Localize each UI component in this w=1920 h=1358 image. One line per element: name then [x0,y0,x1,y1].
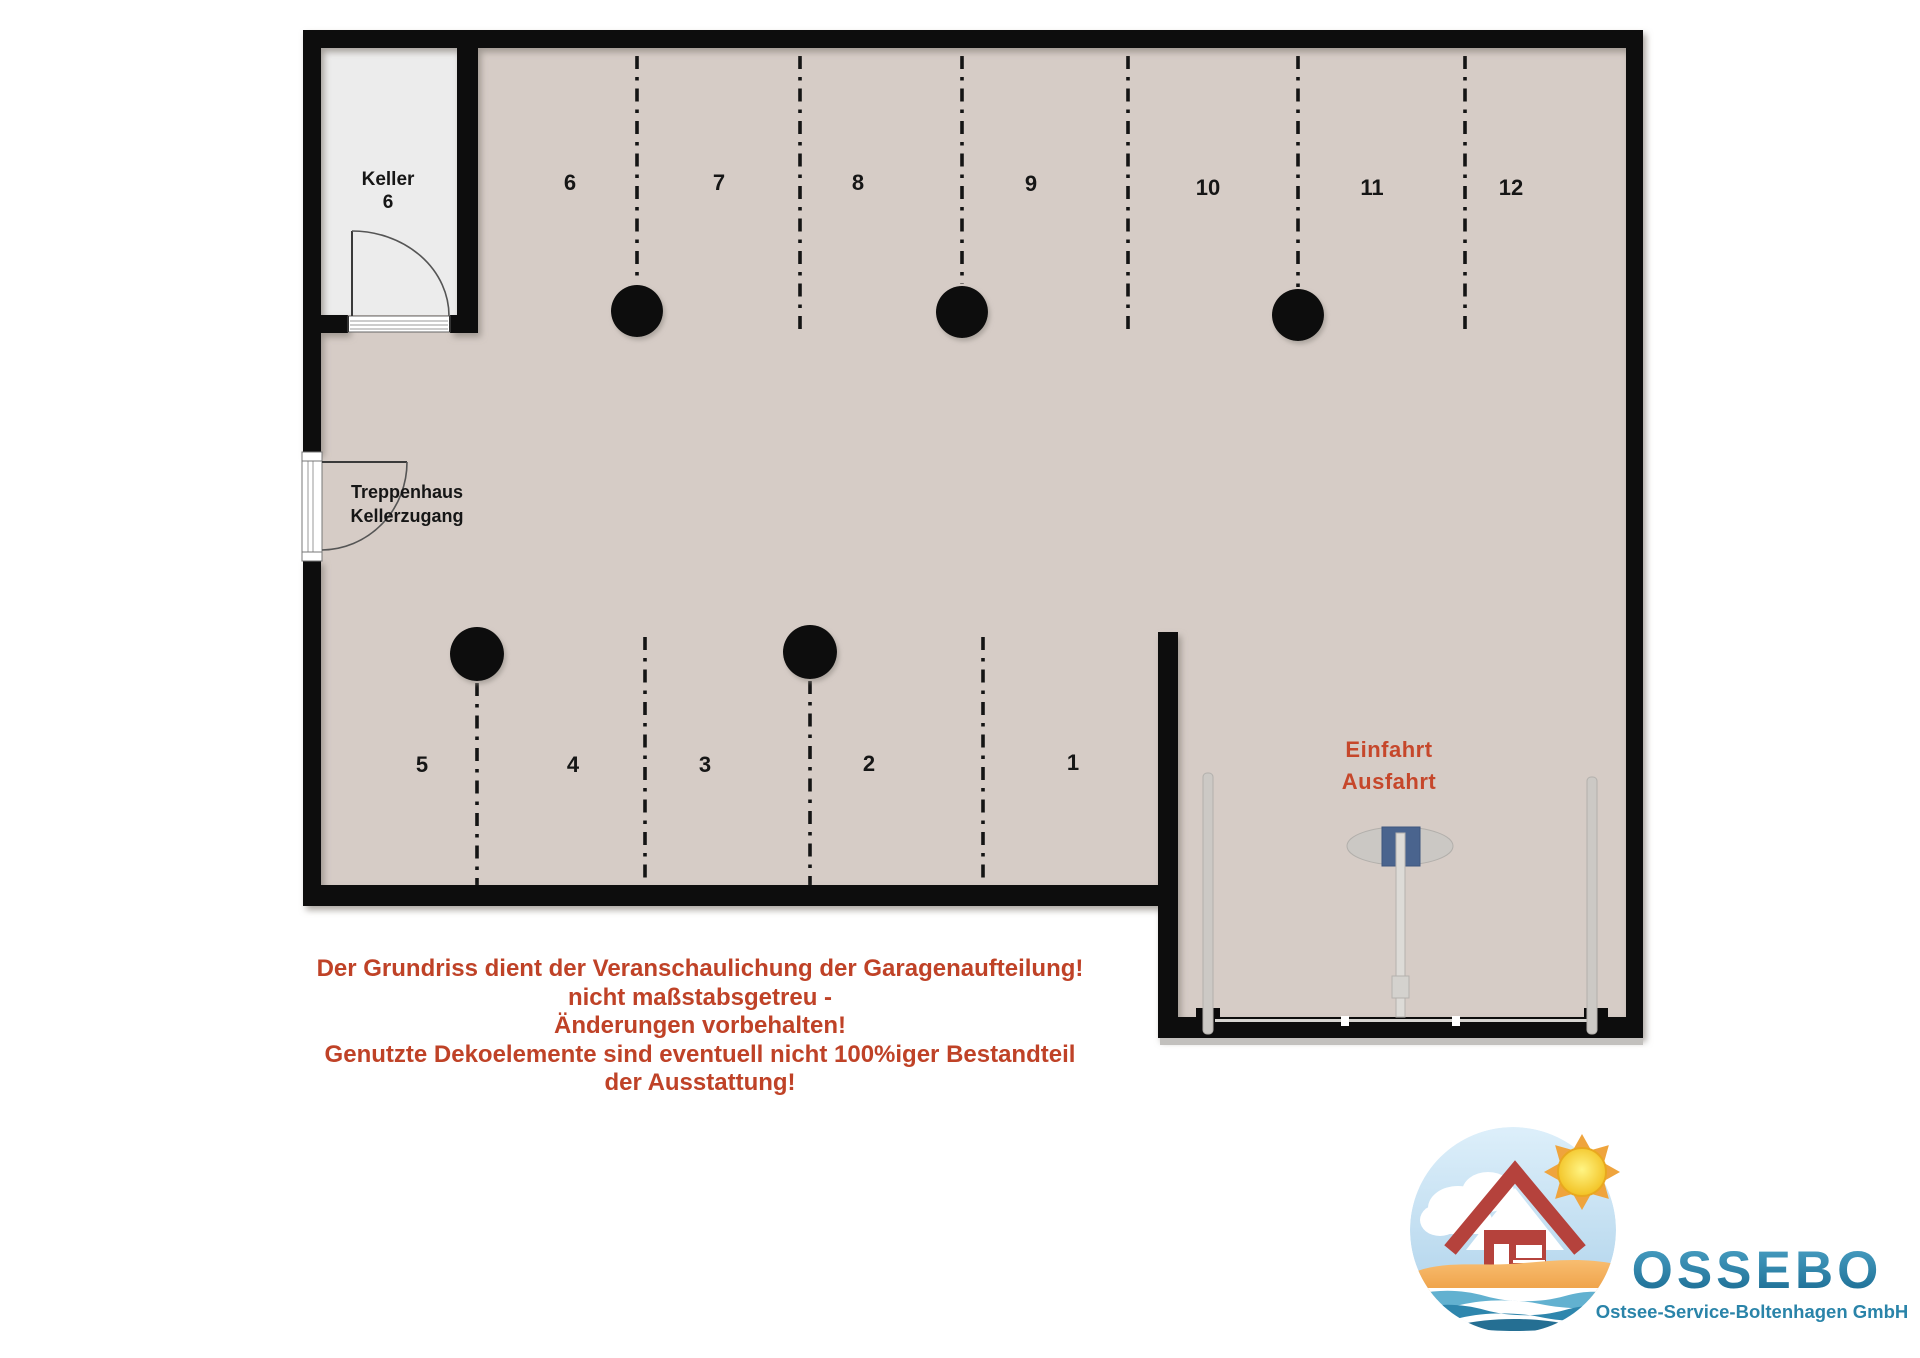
stairwell-label: Treppenhaus Kellerzugang [350,480,463,528]
disclaimer-line: Der Grundriss dient der Veranschaulichun… [268,955,1132,984]
garage-floorplan-page: Keller 6 Treppenhaus Kellerzugang Einfah… [0,0,1920,1358]
space-label-4: 4 [567,752,579,778]
space-label-5: 5 [416,752,428,778]
wall-top [303,30,1643,48]
wall-keller-bottom-right [450,315,478,333]
wall-left-upper [303,30,321,453]
wall-bottom-main [303,885,1178,906]
disclaimer-line: nicht maßstabsgetreu - [268,984,1132,1013]
space-label-1: 1 [1067,750,1079,776]
gate-shadow-strip [1160,1038,1643,1045]
wall-keller-bottom-left [321,315,348,333]
space-label-2: 2 [863,751,875,777]
space-label-9: 9 [1025,171,1037,197]
space-label-6: 6 [564,170,576,196]
wall-left-lower [303,560,321,905]
company-logo: OSSEBO Ostsee-Service-Boltenhagen GmbH [1400,1108,1920,1358]
keller-room-label-line2: 6 [362,191,415,214]
wall-right [1626,30,1643,1038]
space-label-10: 10 [1196,175,1220,201]
disclaimer-line: Genutzte Dekoelemente sind eventuell nic… [268,1041,1132,1070]
space-label-12: 12 [1499,175,1523,201]
space-label-8: 8 [852,170,864,196]
wall-inner-driveway [1158,632,1178,1038]
space-label-7: 7 [713,170,725,196]
wall-keller-right [457,48,478,333]
disclaimer-line: Änderungen vorbehalten! [268,1012,1132,1041]
sun-icon [1544,1134,1620,1210]
entrance-label-line1: Einfahrt [1342,734,1436,766]
space-label-3: 3 [699,752,711,778]
entrance-label: Einfahrt Ausfahrt [1342,734,1436,798]
stairwell-label-line2: Kellerzugang [350,504,463,528]
gate-rail-right [1587,777,1597,1034]
gate-door-line [1215,1019,1590,1022]
stairwell-label-line1: Treppenhaus [350,480,463,504]
floor-surfaces [321,48,1626,1017]
disclaimer-text: Der Grundriss dient der Veranschaulichun… [268,955,1132,1098]
space-label-11: 11 [1360,175,1383,201]
ossebo-logo-icon: OSSEBO Ostsee-Service-Boltenhagen GmbH [1400,1108,1920,1358]
entrance-label-line2: Ausfahrt [1342,766,1436,798]
logo-name-text: OSSEBO [1632,1241,1883,1300]
gate-rail-left [1203,773,1213,1034]
keller-room-label: Keller 6 [362,168,415,214]
logo-subtitle-text: Ostsee-Service-Boltenhagen GmbH [1596,1301,1909,1322]
gate-pole-joint [1392,976,1409,998]
keller-room-label-line1: Keller [362,168,415,191]
disclaimer-line: der Ausstattung! [268,1069,1132,1098]
